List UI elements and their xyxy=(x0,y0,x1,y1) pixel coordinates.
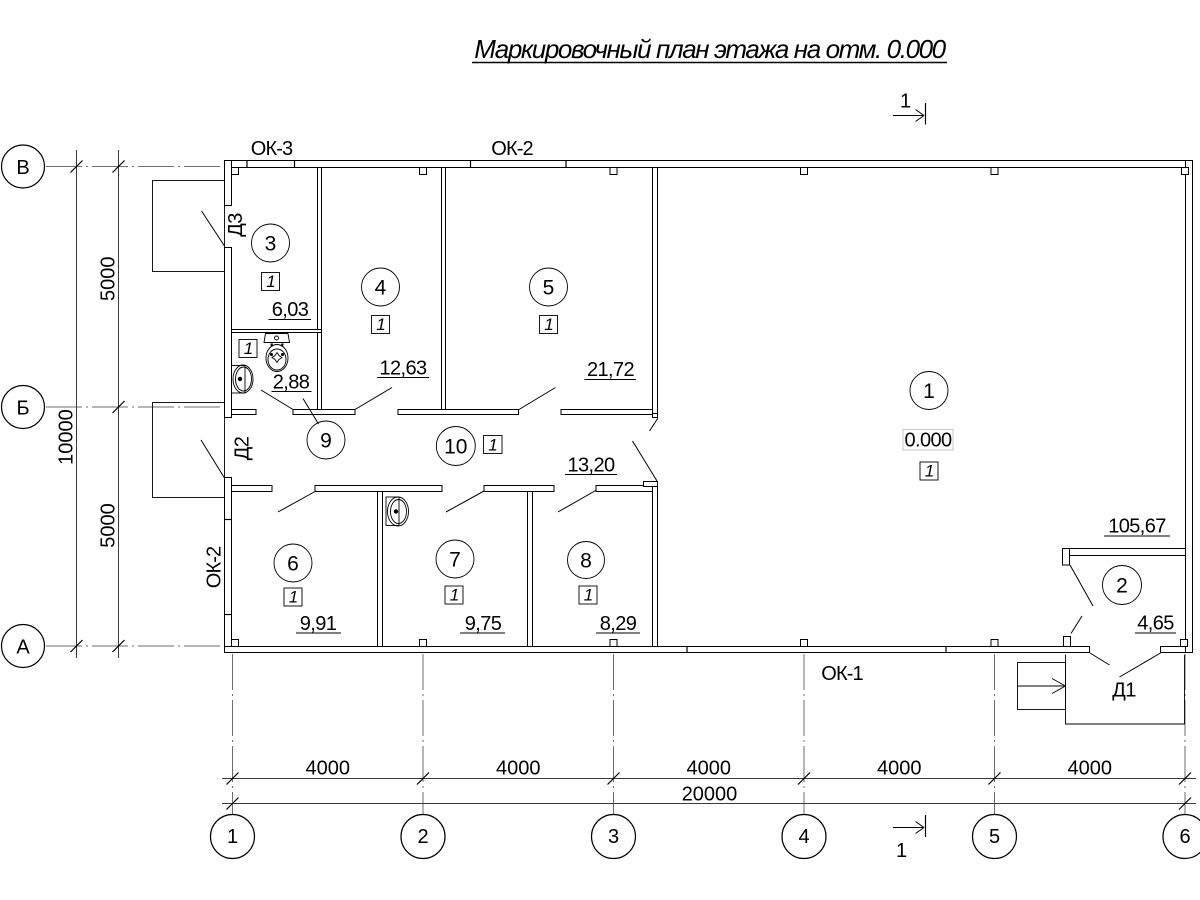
svg-text:105,67: 105,67 xyxy=(1108,516,1166,538)
svg-text:4: 4 xyxy=(375,277,387,300)
svg-text:Д3: Д3 xyxy=(225,213,247,237)
svg-text:5000: 5000 xyxy=(98,503,120,548)
svg-text:ОК-3: ОК-3 xyxy=(251,138,293,160)
svg-text:1: 1 xyxy=(923,380,935,403)
svg-text:1: 1 xyxy=(896,840,907,862)
svg-text:1: 1 xyxy=(925,462,934,481)
svg-text:1: 1 xyxy=(584,586,593,605)
svg-text:21,72: 21,72 xyxy=(587,359,635,381)
svg-text:5: 5 xyxy=(989,826,1000,848)
svg-text:1: 1 xyxy=(376,315,385,334)
svg-text:1: 1 xyxy=(227,826,238,848)
svg-text:ОК-1: ОК-1 xyxy=(821,663,863,685)
svg-text:9,91: 9,91 xyxy=(300,613,337,635)
svg-text:1: 1 xyxy=(450,586,459,605)
svg-text:6: 6 xyxy=(287,553,299,576)
svg-text:5: 5 xyxy=(543,277,555,300)
svg-text:7: 7 xyxy=(449,549,461,572)
svg-text:Б: Б xyxy=(16,398,29,420)
svg-text:12,63: 12,63 xyxy=(379,358,427,380)
svg-text:Д2: Д2 xyxy=(232,436,254,460)
svg-text:6: 6 xyxy=(1179,826,1190,848)
svg-text:1: 1 xyxy=(488,436,497,455)
svg-text:А: А xyxy=(16,637,30,659)
svg-text:4000: 4000 xyxy=(496,758,541,780)
svg-text:Д1: Д1 xyxy=(1112,680,1136,702)
svg-text:4,65: 4,65 xyxy=(1137,613,1174,635)
svg-text:1: 1 xyxy=(900,91,911,113)
svg-text:ОК-2: ОК-2 xyxy=(204,546,226,588)
svg-text:0.000: 0.000 xyxy=(904,430,952,452)
svg-text:9,75: 9,75 xyxy=(465,613,502,635)
svg-text:2: 2 xyxy=(1116,575,1128,598)
svg-text:5000: 5000 xyxy=(98,257,120,302)
svg-text:9: 9 xyxy=(320,430,332,453)
svg-text:1: 1 xyxy=(289,588,298,607)
svg-text:4000: 4000 xyxy=(306,758,351,780)
svg-text:10000: 10000 xyxy=(56,409,78,465)
svg-text:4000: 4000 xyxy=(877,758,922,780)
svg-text:2: 2 xyxy=(417,826,428,848)
svg-text:20000: 20000 xyxy=(682,784,738,806)
svg-text:6,03: 6,03 xyxy=(272,299,309,321)
svg-text:4: 4 xyxy=(798,826,809,848)
svg-text:1: 1 xyxy=(244,339,253,358)
svg-text:В: В xyxy=(16,157,29,179)
svg-text:4000: 4000 xyxy=(1068,758,1113,780)
svg-text:8: 8 xyxy=(580,550,592,573)
svg-text:8,29: 8,29 xyxy=(600,613,637,635)
svg-text:1: 1 xyxy=(544,315,553,334)
svg-text:4000: 4000 xyxy=(687,758,732,780)
svg-text:Маркировочный план этажа на от: Маркировочный план этажа на отм. 0.000 xyxy=(474,34,946,64)
svg-text:2,88: 2,88 xyxy=(273,372,310,394)
svg-text:10: 10 xyxy=(444,436,467,459)
svg-text:3: 3 xyxy=(265,233,277,256)
svg-text:1: 1 xyxy=(266,272,275,291)
svg-text:13,20: 13,20 xyxy=(567,455,615,477)
svg-text:3: 3 xyxy=(608,826,619,848)
svg-text:ОК-2: ОК-2 xyxy=(491,138,533,160)
